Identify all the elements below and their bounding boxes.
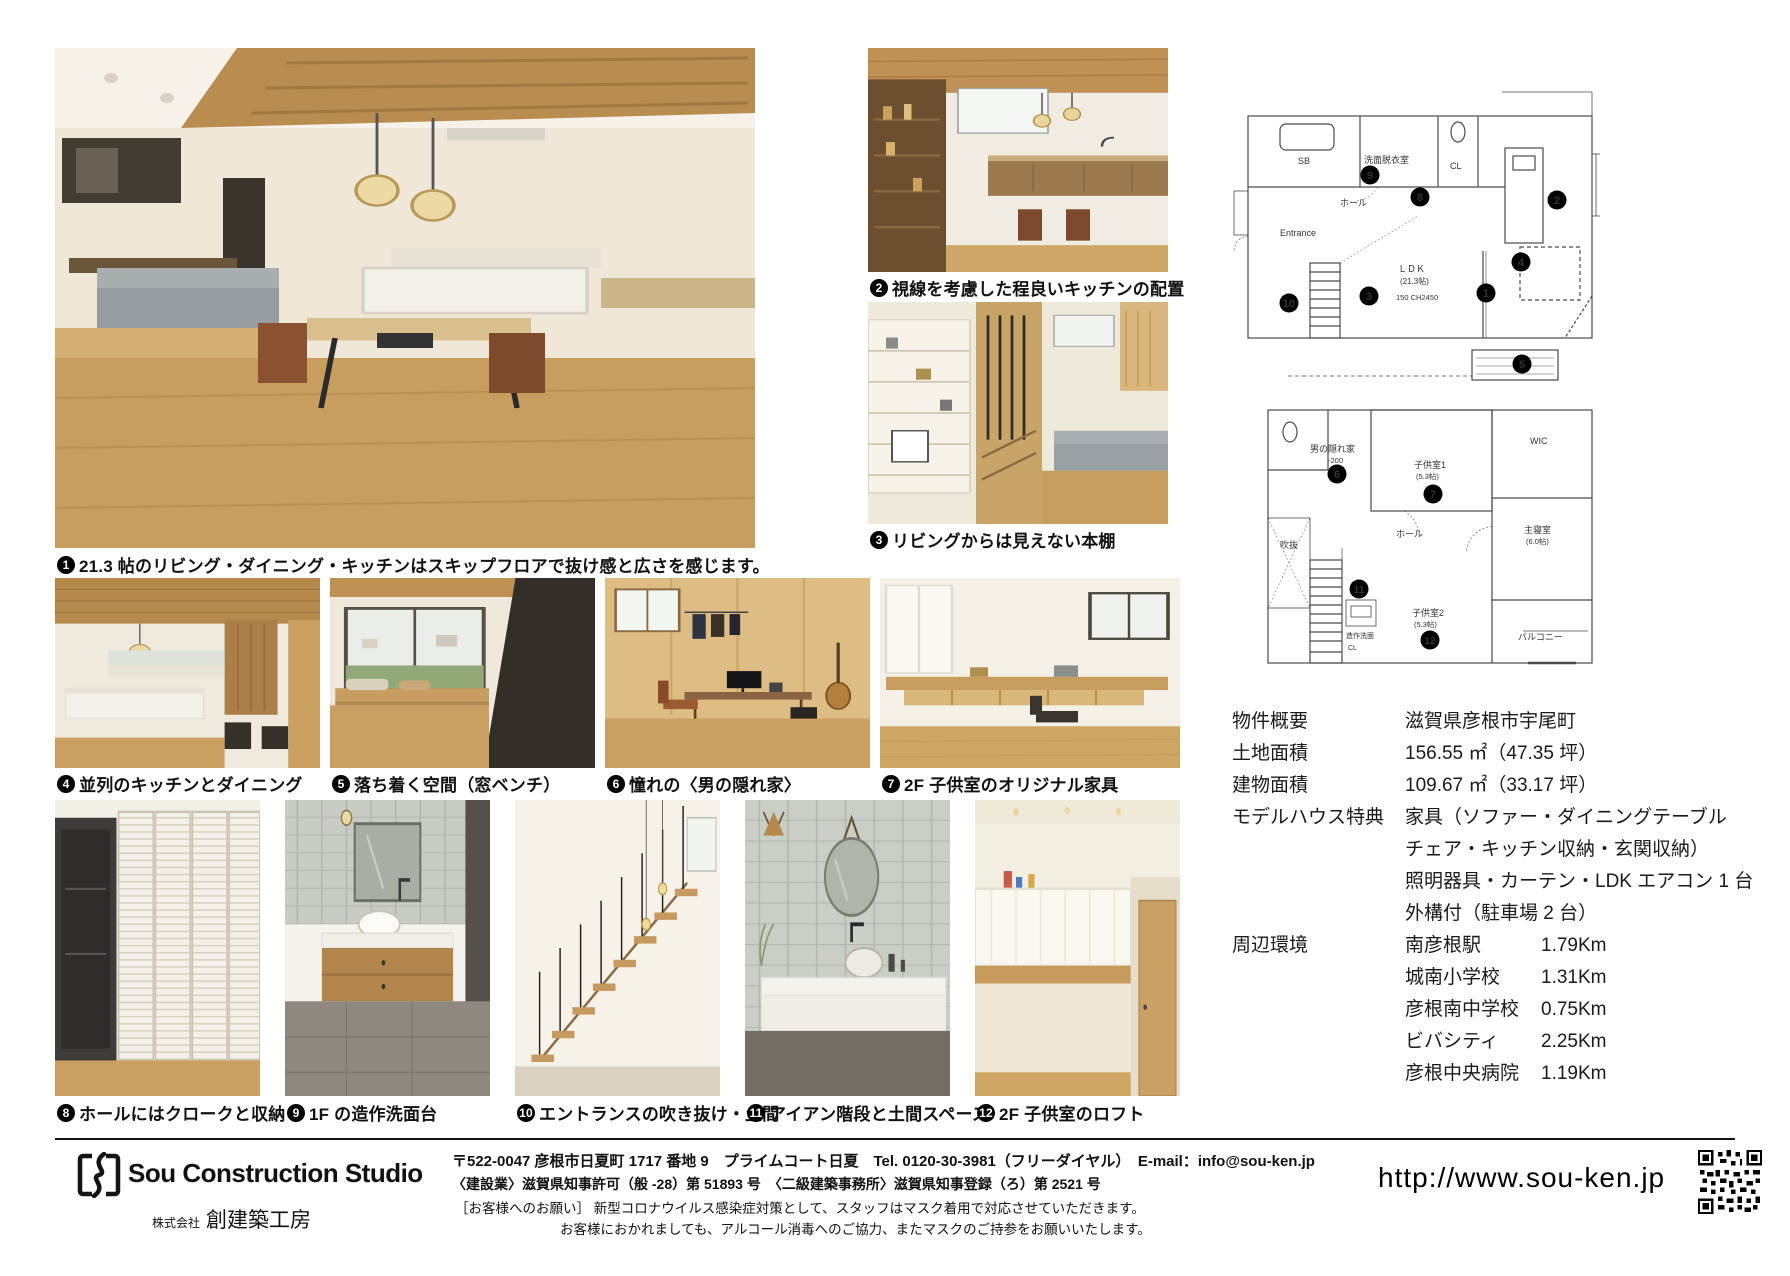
marker-10: 10 bbox=[1283, 298, 1295, 310]
env-place-4: ビバシティ bbox=[1405, 1026, 1541, 1053]
room-label-kids1: 子供室1 bbox=[1414, 459, 1446, 470]
room-label-ldk-note: 150 CH2450 bbox=[1396, 293, 1438, 302]
room-label-master-size: (6.0帖) bbox=[1526, 536, 1549, 546]
caption-11-text: アイアン階段と土間スペース bbox=[769, 1100, 989, 1125]
room-label-cl-2f: CL bbox=[1348, 645, 1357, 652]
caption-9-number: 9 bbox=[287, 1104, 305, 1122]
caption-7-text: 2F 子供室のオリジナル家具 bbox=[904, 771, 1118, 796]
room-label-hall-2f: ホール bbox=[1396, 529, 1423, 539]
env-dist-2: 1.31Km bbox=[1541, 967, 1606, 988]
env-row: 南彦根駅1.79Km bbox=[1405, 930, 1606, 957]
property-value-land: 156.55 ㎡（47.35 坪） bbox=[1405, 738, 1597, 765]
caption-10-number: 10 bbox=[517, 1104, 535, 1122]
caption-9: 9 1F の造作洗面台 bbox=[287, 1100, 437, 1125]
room-label-balcony: バルコニー bbox=[1518, 632, 1563, 642]
marker-12: 12 bbox=[1424, 636, 1436, 647]
company-name-text: 創建築工房 bbox=[206, 1209, 311, 1232]
footer-notice-label: ［お客様へのお願い］ bbox=[455, 1201, 590, 1216]
marker-9: 9 bbox=[1367, 170, 1373, 182]
plan-markers-2f: 5 6 7 11 12 bbox=[1328, 355, 1532, 650]
photo-illustration bbox=[868, 48, 1168, 272]
property-model-line-2: チェア・キッチン収納・玄関収納） bbox=[1405, 834, 1709, 861]
caption-5: 5 落ち着く空間（窓ベンチ） bbox=[332, 771, 560, 796]
caption-10-text: エントランスの吹き抜け・土間 bbox=[539, 1100, 779, 1125]
env-row: 彦根中央病院1.19Km bbox=[1405, 1058, 1606, 1085]
property-label-land: 土地面積 bbox=[1232, 738, 1308, 765]
caption-4-text: 並列のキッチンとダイニング bbox=[79, 771, 303, 796]
photo-window-bench bbox=[330, 578, 595, 768]
caption-1-text: 21.3 帖のリビング・ダイニング・キッチンはスキップフロアで抜け感と広さを感じ… bbox=[79, 552, 770, 577]
photo-illustration bbox=[55, 800, 260, 1096]
room-label-master: 主寝室 bbox=[1524, 524, 1551, 535]
marker-5: 5 bbox=[1519, 359, 1525, 371]
env-place-2: 城南小学校 bbox=[1405, 962, 1541, 989]
room-label-wic: WIC bbox=[1530, 436, 1548, 446]
photo-illustration bbox=[330, 578, 595, 768]
caption-1-number: 1 bbox=[57, 556, 75, 574]
room-label-cl: CL bbox=[1450, 161, 1462, 171]
caption-6: 6 憧れの〈男の隠れ家〉 bbox=[607, 771, 801, 796]
property-value-building: 109.67 ㎡（33.17 坪） bbox=[1405, 770, 1597, 797]
caption-5-number: 5 bbox=[332, 775, 350, 793]
env-place-1: 南彦根駅 bbox=[1405, 930, 1541, 957]
flyer-page: 1 21.3 帖のリビング・ダイニング・キッチンはスキップフロアで抜け感と広さを… bbox=[0, 0, 1790, 1276]
caption-8-text: ホールにはクロークと収納 bbox=[79, 1100, 285, 1125]
marker-6: 6 bbox=[1334, 469, 1340, 481]
photo-entrance-void bbox=[515, 800, 720, 1096]
room-label-hideout-level: -200 bbox=[1328, 456, 1343, 465]
caption-12: 12 2F 子供室のロフト bbox=[977, 1100, 1145, 1125]
photo-illustration bbox=[55, 578, 320, 768]
photo-illustration bbox=[285, 800, 490, 1096]
footer-address: 〒522-0047 彦根市日夏町 1717 番地 9 プライムコート日夏 Tel… bbox=[452, 1150, 1315, 1171]
caption-3-text: リビングからは見えない本棚 bbox=[892, 527, 1116, 552]
room-label-kids2-size: (5.3帖) bbox=[1414, 619, 1437, 629]
qr-code bbox=[1698, 1150, 1762, 1214]
env-dist-4: 2.25Km bbox=[1541, 1031, 1606, 1052]
photo-iron-stairs-doma bbox=[745, 800, 950, 1096]
caption-3: 3 リビングからは見えない本棚 bbox=[870, 527, 1116, 552]
marker-8: 8 bbox=[1417, 192, 1423, 204]
caption-6-text: 憧れの〈男の隠れ家〉 bbox=[629, 771, 801, 796]
footer-notice-1: ［お客様へのお願い］ 新型コロナウイルス感染症対策として、スタッフはマスク着用で… bbox=[455, 1197, 1145, 1217]
caption-7-number: 7 bbox=[882, 775, 900, 793]
photo-illustration bbox=[605, 578, 870, 768]
photo-illustration bbox=[515, 800, 720, 1096]
company-logo-text: Sou Construction Studio bbox=[128, 1158, 423, 1189]
marker-2: 2 bbox=[1554, 195, 1560, 207]
room-label-hall: ホール bbox=[1340, 198, 1367, 208]
caption-8-number: 8 bbox=[57, 1104, 75, 1122]
room-label-entrance: Entrance bbox=[1280, 228, 1316, 238]
marker-11: 11 bbox=[1354, 585, 1365, 596]
env-place-5: 彦根中央病院 bbox=[1405, 1058, 1541, 1085]
room-label-kids1-size: (5.3帖) bbox=[1416, 471, 1439, 481]
footer-notice-2: お客様におかれましても、アルコール消毒へのご協力、またマスクのご持参をお願いいた… bbox=[560, 1218, 1151, 1238]
caption-7: 7 2F 子供室のオリジナル家具 bbox=[882, 771, 1118, 796]
property-value-overview: 滋賀県彦根市宇尾町 bbox=[1405, 706, 1576, 733]
photo-kitchen-view bbox=[868, 48, 1168, 272]
property-model-line-3: 照明器具・カーテン・LDK エアコン 1 台 bbox=[1405, 866, 1753, 893]
room-label-ldk-size: (21.3帖) bbox=[1400, 276, 1429, 286]
floorplan-1f-drawing: SB 洗面脱衣室 CL ホール Entrance ＬＤＫ (21.3帖) 150… bbox=[1228, 66, 1660, 340]
property-label-overview: 物件概要 bbox=[1232, 706, 1308, 733]
caption-11-number: 11 bbox=[747, 1104, 765, 1122]
photo-parallel-kitchen bbox=[55, 578, 320, 768]
photo-illustration bbox=[975, 800, 1180, 1096]
caption-11: 11 アイアン階段と土間スペース bbox=[747, 1100, 989, 1125]
room-label-wash-2f: 造作洗面 bbox=[1346, 631, 1374, 640]
marker-1: 1 bbox=[1483, 288, 1489, 300]
env-row: ビバシティ2.25Km bbox=[1405, 1026, 1606, 1053]
room-label-hideout: 男の隠れ家 bbox=[1310, 443, 1355, 454]
property-model-line-1: 家具（ソファー・ダイニングテーブル bbox=[1405, 802, 1727, 829]
caption-9-text: 1F の造作洗面台 bbox=[309, 1100, 437, 1125]
room-label-kids2: 子供室2 bbox=[1412, 607, 1444, 618]
photo-illustration bbox=[55, 48, 755, 548]
room-label-wash: 洗面脱衣室 bbox=[1364, 154, 1409, 165]
caption-1: 1 21.3 帖のリビング・ダイニング・キッチンはスキップフロアで抜け感と広さを… bbox=[57, 552, 770, 577]
photo-kids-loft bbox=[975, 800, 1180, 1096]
photo-illustration bbox=[868, 302, 1168, 524]
caption-6-number: 6 bbox=[607, 775, 625, 793]
room-label-void: 吹抜 bbox=[1280, 539, 1298, 550]
photo-hall-closet bbox=[55, 800, 260, 1096]
floorplan-2f-drawing: 男の隠れ家 -200 子供室1 (5.3帖) WIC ホール 主寝室 (6.0帖… bbox=[1228, 348, 1660, 670]
photo-kids-desk bbox=[880, 578, 1180, 768]
floorplan-2f: 男の隠れ家 -200 子供室1 (5.3帖) WIC ホール 主寝室 (6.0帖… bbox=[1228, 348, 1660, 670]
caption-2-text: 視線を考慮した程良いキッチンの配置 bbox=[892, 275, 1184, 300]
company-prefix: 株式会社 bbox=[152, 1216, 200, 1230]
caption-8: 8 ホールにはクロークと収納 bbox=[57, 1100, 285, 1125]
env-place-3: 彦根南中学校 bbox=[1405, 994, 1541, 1021]
caption-4-number: 4 bbox=[57, 775, 75, 793]
footer-notice-text-1: 新型コロナウイルス感染症対策として、スタッフはマスク着用で対応させていただきます… bbox=[594, 1201, 1145, 1216]
company-name: 株式会社創建築工房 bbox=[152, 1204, 311, 1234]
caption-3-number: 3 bbox=[870, 531, 888, 549]
caption-5-text: 落ち着く空間（窓ベンチ） bbox=[354, 771, 560, 796]
caption-12-text: 2F 子供室のロフト bbox=[999, 1100, 1145, 1125]
env-dist-1: 1.79Km bbox=[1541, 935, 1606, 956]
company-logo-icon bbox=[76, 1152, 122, 1198]
photo-illustration bbox=[880, 578, 1180, 768]
marker-7: 7 bbox=[1430, 489, 1436, 501]
caption-10: 10 エントランスの吹き抜け・土間 bbox=[517, 1100, 779, 1125]
footer-license: 〈建設業〉滋賀県知事許可（般 -28）第 51893 号 〈二級建築事務所〉滋賀… bbox=[452, 1174, 1101, 1194]
photo-washstand-1f bbox=[285, 800, 490, 1096]
marker-4: 4 bbox=[1518, 257, 1525, 269]
property-label-model: モデルハウス特典 bbox=[1232, 802, 1384, 829]
env-dist-5: 1.19Km bbox=[1541, 1063, 1606, 1084]
photo-hideout bbox=[605, 578, 870, 768]
website-url: http://www.sou-ken.jp bbox=[1378, 1162, 1665, 1194]
property-label-building: 建物面積 bbox=[1232, 770, 1308, 797]
env-dist-3: 0.75Km bbox=[1541, 999, 1606, 1020]
footer-divider bbox=[55, 1138, 1735, 1140]
photo-illustration bbox=[745, 800, 950, 1096]
caption-2-number: 2 bbox=[870, 279, 888, 297]
env-row: 城南小学校1.31Km bbox=[1405, 962, 1606, 989]
photo-bookshelf bbox=[868, 302, 1168, 524]
floorplan-1f: SB 洗面脱衣室 CL ホール Entrance ＬＤＫ (21.3帖) 150… bbox=[1228, 66, 1660, 340]
room-label-sb: SB bbox=[1298, 156, 1310, 166]
caption-12-number: 12 bbox=[977, 1104, 995, 1122]
caption-2: 2 視線を考慮した程良いキッチンの配置 bbox=[870, 275, 1184, 300]
caption-4: 4 並列のキッチンとダイニング bbox=[57, 771, 303, 796]
marker-3: 3 bbox=[1366, 291, 1372, 303]
env-row: 彦根南中学校0.75Km bbox=[1405, 994, 1606, 1021]
photo-ldk-main bbox=[55, 48, 755, 548]
property-label-env: 周辺環境 bbox=[1232, 930, 1308, 957]
room-label-ldk: ＬＤＫ bbox=[1398, 264, 1425, 274]
property-model-line-4: 外構付（駐車場 2 台） bbox=[1405, 898, 1597, 925]
